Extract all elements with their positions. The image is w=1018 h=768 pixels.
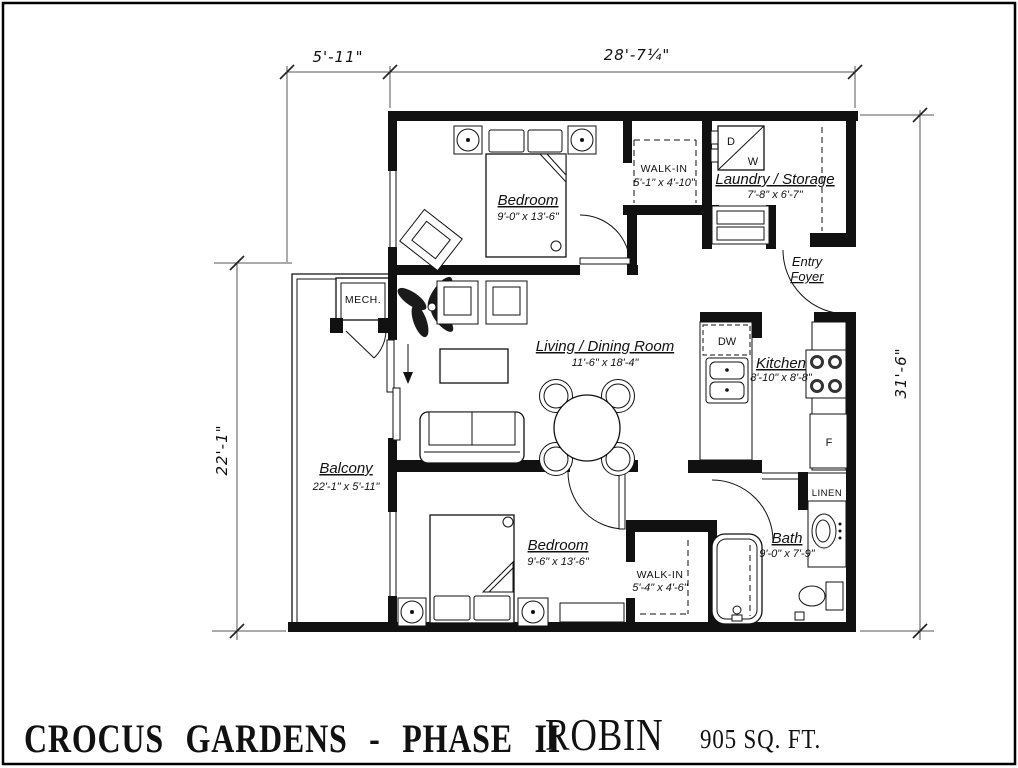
bedroom-bottom-door (568, 472, 625, 529)
pillow (434, 596, 470, 620)
dining-table (554, 395, 620, 461)
bedroom-top-size: 9'-0" x 13'-6" (497, 211, 560, 223)
toilet (799, 586, 825, 606)
walk-in-bottom-size: 5'-4" x 4'-6" (632, 582, 689, 594)
balcony-size: 22'-1" x 5'-11" (312, 481, 381, 493)
dining-set (540, 380, 635, 476)
mech-door (346, 331, 374, 358)
corner-chair (400, 209, 462, 270)
mech-closet (330, 278, 391, 358)
floorplan-drawing: 5'-11" 28'-7¼" 22'-1" 31'-6" (0, 0, 1018, 768)
unit-area: 905 SQ. FT. (700, 725, 821, 754)
balcony-label: Balcony (319, 460, 374, 477)
fridge-label: F (826, 437, 833, 449)
kitchen-size: 8'-10" x 8'-8" (750, 372, 813, 384)
dim-unit-width: 28'-7¼" (604, 46, 671, 64)
laundry-label: Laundry / Storage (715, 171, 834, 188)
kitchen-fixtures: DW F (700, 322, 847, 470)
walk-in-top-size: 5'-1" x 4'-10" (633, 177, 696, 189)
bedroom-top-label: Bedroom (498, 192, 559, 209)
walk-in-top-label: WALK-IN (641, 163, 688, 175)
bedroom-bottom-window-sill (560, 603, 624, 622)
toilet-tank (826, 582, 843, 610)
title-block: CROCUS GARDENS - PHASE II ROBIN 905 SQ. … (24, 710, 821, 761)
dishwasher-label: DW (718, 336, 737, 348)
walk-in-bottom-label: WALK-IN (637, 569, 684, 581)
bedroom-bottom-size: 9'-6" x 13'-6" (527, 556, 590, 568)
floorplan-page: 5'-11" 28'-7¼" 22'-1" 31'-6" (0, 0, 1018, 768)
dim-balcony-width: 5'-11" (312, 48, 363, 66)
pillow (474, 596, 510, 620)
project-name: CROCUS GARDENS - PHASE II (24, 717, 561, 761)
coffee-table (440, 349, 508, 383)
bath-label: Bath (772, 530, 803, 547)
unit-name: ROBIN (545, 710, 663, 761)
dim-unit-depth: 31'-6" (892, 347, 910, 398)
entry-foyer-label-2: Foyer (790, 269, 824, 284)
kitchen-label: Kitchen (756, 355, 806, 372)
entry-foyer-label-1: Entry (792, 254, 824, 269)
dim-balcony-length: 22'-1" (213, 424, 231, 475)
pillow (528, 130, 562, 152)
windows (387, 171, 400, 596)
pillow (489, 130, 524, 152)
mech-label: MECH. (345, 294, 381, 306)
dryer-label: D (727, 136, 735, 148)
furniture-bedroom-bottom (398, 515, 548, 626)
bath-door (712, 480, 773, 541)
bath-size: 9'-0" x 7'-9" (759, 548, 816, 560)
patio-sliding-door (387, 340, 394, 392)
furniture-living (394, 273, 634, 475)
washer-label: W (748, 156, 759, 168)
laundry-size: 7'-8" x 6'-7" (747, 189, 804, 201)
living-dining-size: 11'-6" x 18'-4" (572, 357, 640, 369)
bedroom-bottom-label: Bedroom (528, 537, 589, 554)
living-dining-label: Living / Dining Room (536, 338, 674, 355)
linen-label: LINEN (812, 488, 842, 499)
